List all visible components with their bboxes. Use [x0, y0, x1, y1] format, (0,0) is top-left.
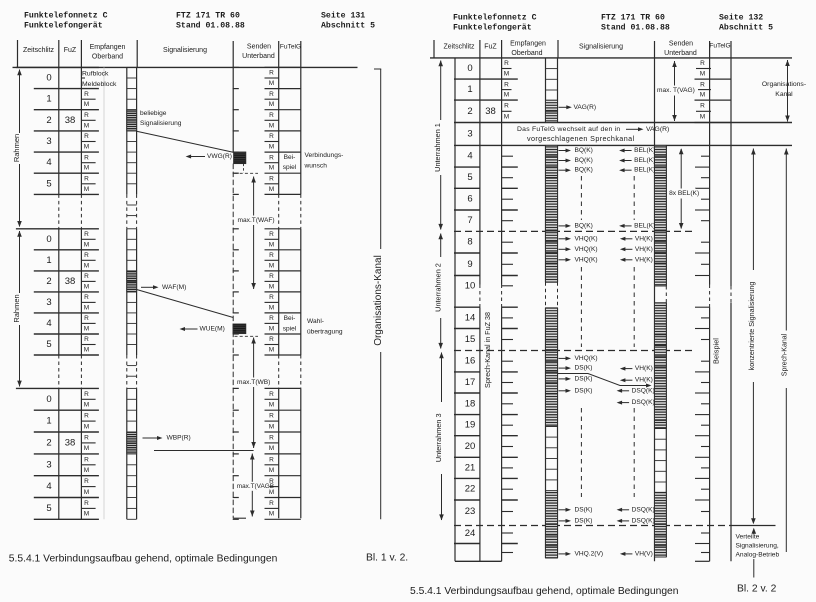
- svg-text:1: 1: [46, 416, 51, 427]
- svg-text:R: R: [84, 500, 89, 507]
- svg-text:BEL(K): BEL(K): [634, 157, 655, 164]
- svg-text:R: R: [84, 294, 89, 301]
- svg-text:23: 23: [465, 506, 476, 517]
- svg-text:max.T(WAF): max.T(WAF): [238, 217, 275, 224]
- svg-text:R: R: [269, 315, 274, 322]
- svg-text:Unterrahmen 3: Unterrahmen 3: [434, 413, 443, 462]
- svg-text:Empfangen: Empfangen: [90, 44, 126, 51]
- svg-text:Verbindungs-: Verbindungs-: [305, 152, 344, 159]
- svg-text:R: R: [84, 413, 89, 420]
- svg-text:R: R: [269, 413, 274, 420]
- svg-text:5: 5: [46, 503, 51, 514]
- svg-text:2: 2: [46, 437, 51, 448]
- svg-text:R: R: [84, 176, 89, 183]
- svg-text:M: M: [269, 445, 274, 452]
- svg-text:vorgeschlagenen Sprechkanal: vorgeschlagenen Sprechkanal: [527, 134, 635, 143]
- svg-text:M: M: [84, 241, 89, 248]
- svg-text:VHQ.2(V): VHQ.2(V): [575, 550, 604, 557]
- svg-text:M: M: [84, 402, 89, 409]
- svg-text:M: M: [84, 283, 89, 290]
- svg-text:16: 16: [465, 356, 476, 367]
- svg-text:R: R: [84, 112, 89, 119]
- svg-text:Senden: Senden: [669, 41, 693, 48]
- svg-text:3: 3: [467, 129, 472, 140]
- svg-text:wunsch: wunsch: [304, 162, 328, 169]
- svg-text:BEL(K): BEL(K): [634, 147, 655, 154]
- svg-text:konzentrierte Signalisierung: konzentrierte Signalisierung: [747, 282, 756, 371]
- svg-text:R: R: [269, 336, 274, 343]
- svg-text:M: M: [269, 122, 274, 129]
- svg-text:R: R: [700, 81, 705, 88]
- svg-text:R: R: [84, 315, 89, 322]
- svg-text:WBP(R): WBP(R): [167, 435, 191, 442]
- svg-text:Organisations-: Organisations-: [762, 81, 806, 88]
- svg-text:R: R: [504, 81, 509, 88]
- svg-text:M: M: [84, 445, 89, 452]
- svg-text:M: M: [84, 262, 89, 269]
- svg-text:Meldeblock: Meldeblock: [82, 81, 117, 88]
- svg-text:DSQ(K): DSQ(K): [632, 517, 655, 524]
- svg-text:M: M: [269, 346, 274, 353]
- svg-text:17: 17: [465, 377, 476, 388]
- svg-text:Organisations-Kanal: Organisations-Kanal: [373, 255, 384, 346]
- svg-text:WAF(M): WAF(M): [162, 284, 186, 291]
- svg-text:Beispiel: Beispiel: [712, 338, 721, 364]
- svg-text:7: 7: [467, 215, 472, 226]
- svg-text:BEL(K): BEL(K): [634, 222, 655, 229]
- svg-text:R: R: [84, 252, 89, 259]
- svg-text:4: 4: [467, 151, 472, 162]
- svg-text:R: R: [84, 478, 89, 485]
- svg-text:Zeitschlitz: Zeitschlitz: [443, 44, 475, 51]
- svg-text:5: 5: [46, 178, 51, 189]
- svg-text:M: M: [84, 122, 89, 129]
- svg-text:VHQ(K): VHQ(K): [575, 256, 598, 263]
- svg-text:R: R: [269, 112, 274, 119]
- svg-text:DS(K): DS(K): [575, 387, 593, 394]
- svg-text:R: R: [269, 456, 274, 463]
- svg-text:R: R: [269, 91, 274, 98]
- svg-text:1: 1: [46, 255, 51, 266]
- svg-text:M: M: [269, 489, 274, 496]
- svg-text:VAG(R): VAG(R): [574, 104, 597, 111]
- svg-text:14: 14: [465, 312, 476, 323]
- svg-text:Funktelefongerät: Funktelefongerät: [24, 21, 103, 31]
- svg-text:Kanal: Kanal: [775, 91, 793, 98]
- svg-text:FuZ: FuZ: [64, 47, 77, 54]
- svg-text:M: M: [84, 186, 89, 193]
- svg-text:0: 0: [46, 234, 51, 245]
- svg-text:M: M: [84, 165, 89, 172]
- svg-text:Bl. 2 v. 2: Bl. 2 v. 2: [737, 584, 777, 595]
- svg-text:DS(K): DS(K): [575, 365, 593, 372]
- svg-text:M: M: [269, 511, 274, 518]
- svg-text:0: 0: [467, 63, 472, 74]
- svg-text:Unterrahmen 1: Unterrahmen 1: [433, 123, 442, 172]
- svg-text:Funktelefongerät: Funktelefongerät: [453, 23, 532, 33]
- svg-text:R: R: [269, 70, 274, 77]
- svg-text:M: M: [269, 325, 274, 332]
- svg-text:BQ(K): BQ(K): [575, 167, 593, 174]
- svg-text:8: 8: [467, 237, 472, 248]
- svg-text:R: R: [504, 103, 509, 110]
- svg-text:R: R: [504, 60, 509, 67]
- svg-text:M: M: [269, 467, 274, 474]
- svg-text:5.5.4.1 Verbindungsaufbau gehe: 5.5.4.1 Verbindungsaufbau gehend, optima…: [410, 586, 679, 597]
- svg-text:M: M: [504, 92, 509, 99]
- svg-text:R: R: [269, 391, 274, 398]
- svg-text:Seite 132: Seite 132: [719, 13, 763, 23]
- svg-text:VHQ(K): VHQ(K): [575, 235, 598, 242]
- svg-text:max. T(VAG): max. T(VAG): [657, 87, 695, 94]
- svg-text:Unterband: Unterband: [242, 53, 275, 60]
- svg-text:2: 2: [46, 276, 51, 287]
- svg-text:Signalisierung,: Signalisierung,: [736, 543, 779, 550]
- svg-text:M: M: [269, 101, 274, 108]
- svg-text:BQ(K): BQ(K): [575, 222, 593, 229]
- svg-text:BQ(K): BQ(K): [575, 147, 593, 154]
- svg-text:VHQ(K): VHQ(K): [575, 246, 598, 253]
- svg-text:BQ(K): BQ(K): [575, 157, 593, 164]
- svg-text:Bei-: Bei-: [284, 315, 296, 322]
- svg-text:beliebige: beliebige: [140, 110, 167, 117]
- svg-text:4: 4: [46, 481, 51, 492]
- svg-text:FTZ 171 TR 60: FTZ 171 TR 60: [176, 12, 240, 21]
- svg-text:18: 18: [465, 398, 476, 409]
- svg-text:5: 5: [46, 339, 51, 350]
- svg-text:5.5.4.1 Verbindungsaufbau gehe: 5.5.4.1 Verbindungsaufbau gehend, optima…: [9, 554, 278, 565]
- svg-text:38: 38: [485, 106, 496, 117]
- svg-text:R: R: [700, 60, 705, 67]
- svg-text:Rahmen: Rahmen: [12, 294, 21, 322]
- svg-text:0: 0: [46, 394, 51, 405]
- svg-text:Sprech-Kanal: Sprech-Kanal: [782, 333, 789, 376]
- svg-text:Abschnitt 5: Abschnitt 5: [321, 21, 375, 31]
- svg-text:3: 3: [46, 297, 51, 308]
- svg-text:VH(K): VH(K): [635, 365, 653, 372]
- svg-text:R: R: [84, 273, 89, 280]
- svg-text:M: M: [269, 262, 274, 269]
- svg-text:19: 19: [465, 420, 476, 431]
- svg-text:Senden: Senden: [247, 44, 271, 51]
- svg-text:M: M: [84, 144, 89, 151]
- svg-text:spiel: spiel: [283, 326, 297, 333]
- svg-text:R: R: [84, 434, 89, 441]
- svg-text:21: 21: [465, 462, 476, 473]
- svg-text:Stand 01.08.88: Stand 01.08.88: [176, 21, 245, 31]
- svg-text:10: 10: [465, 280, 476, 291]
- svg-text:M: M: [269, 186, 274, 193]
- svg-text:R: R: [84, 133, 89, 140]
- svg-text:R: R: [84, 154, 89, 161]
- svg-text:M: M: [269, 402, 274, 409]
- svg-text:R: R: [269, 133, 274, 140]
- svg-text:M: M: [269, 283, 274, 290]
- svg-text:BEL(K): BEL(K): [634, 167, 655, 174]
- svg-text:Bei-: Bei-: [284, 154, 296, 161]
- svg-text:24: 24: [465, 528, 476, 539]
- svg-text:VH(K): VH(K): [635, 377, 653, 384]
- svg-text:M: M: [84, 101, 89, 108]
- svg-text:übertragung: übertragung: [307, 329, 343, 336]
- svg-text:M: M: [84, 346, 89, 353]
- svg-text:M: M: [269, 304, 274, 311]
- svg-text:VH(K): VH(K): [635, 235, 653, 242]
- svg-text:FTZ 171 TR 60: FTZ 171 TR 60: [601, 14, 665, 23]
- svg-text:M: M: [269, 423, 274, 430]
- svg-text:R: R: [269, 231, 274, 238]
- svg-text:M: M: [269, 80, 274, 87]
- svg-text:20: 20: [465, 441, 476, 452]
- svg-text:R: R: [700, 103, 705, 110]
- svg-text:Signalisierung: Signalisierung: [163, 47, 207, 54]
- svg-text:3: 3: [46, 136, 51, 147]
- svg-text:R: R: [269, 294, 274, 301]
- svg-text:DS(K): DS(K): [575, 517, 593, 524]
- svg-text:2: 2: [46, 115, 51, 126]
- svg-text:VH(K): VH(K): [635, 246, 653, 253]
- svg-text:Zeitschlitz: Zeitschlitz: [23, 47, 55, 54]
- svg-text:M: M: [84, 467, 89, 474]
- svg-text:M: M: [84, 489, 89, 496]
- svg-text:VAG(R): VAG(R): [646, 126, 669, 133]
- svg-text:M: M: [84, 511, 89, 518]
- svg-text:Unterrahmen 2: Unterrahmen 2: [433, 263, 442, 312]
- svg-text:Analog-Betrieb: Analog-Betrieb: [736, 551, 780, 558]
- svg-text:R: R: [269, 434, 274, 441]
- svg-text:Wahl-: Wahl-: [307, 318, 324, 325]
- svg-text:M: M: [504, 71, 509, 78]
- svg-text:M: M: [84, 304, 89, 311]
- svg-text:M: M: [269, 241, 274, 248]
- svg-text:FuTelG: FuTelG: [709, 43, 730, 50]
- svg-text:1: 1: [467, 84, 472, 95]
- svg-text:22: 22: [465, 484, 476, 495]
- svg-text:Empfangen: Empfangen: [510, 41, 546, 48]
- svg-text:8x BEL(K): 8x BEL(K): [669, 190, 699, 197]
- svg-text:Rahmen: Rahmen: [12, 134, 21, 162]
- svg-text:max.T(WB): max.T(WB): [237, 379, 270, 386]
- svg-text:R: R: [84, 336, 89, 343]
- svg-text:Das FuTelG wechselt auf den in: Das FuTelG wechselt auf den in: [517, 126, 620, 133]
- svg-text:0: 0: [46, 73, 51, 84]
- svg-text:38: 38: [65, 437, 76, 448]
- svg-text:R: R: [269, 273, 274, 280]
- svg-text:Signalisierung: Signalisierung: [140, 120, 182, 127]
- svg-text:38: 38: [65, 276, 76, 287]
- svg-text:Sprech-Kanal in FuZ 38: Sprech-Kanal in FuZ 38: [483, 312, 492, 388]
- svg-text:15: 15: [465, 334, 476, 345]
- svg-text:Verteilte: Verteilte: [736, 534, 760, 541]
- svg-text:Bl. 1 v. 2.: Bl. 1 v. 2.: [366, 553, 408, 564]
- svg-text:M: M: [700, 71, 705, 78]
- svg-text:Unterband: Unterband: [664, 50, 697, 57]
- svg-text:6: 6: [467, 194, 472, 205]
- svg-text:Stand 01.08.88: Stand 01.08.88: [601, 23, 670, 33]
- svg-text:VH(V): VH(V): [635, 550, 653, 557]
- svg-text:Abschnitt 5: Abschnitt 5: [719, 23, 773, 33]
- svg-text:3: 3: [46, 459, 51, 470]
- svg-text:VHQ(K): VHQ(K): [575, 355, 598, 362]
- svg-text:DSQ(K): DSQ(K): [632, 506, 655, 513]
- svg-text:M: M: [269, 144, 274, 151]
- svg-text:M: M: [84, 325, 89, 332]
- svg-text:R: R: [269, 154, 274, 161]
- svg-text:DSQ(K): DSQ(K): [632, 387, 655, 394]
- svg-text:M: M: [84, 423, 89, 430]
- svg-text:R: R: [84, 456, 89, 463]
- svg-text:M: M: [269, 165, 274, 172]
- svg-text:FuZ: FuZ: [484, 44, 497, 51]
- svg-text:Seite 131: Seite 131: [321, 11, 365, 21]
- svg-text:R: R: [84, 391, 89, 398]
- svg-text:Oberband: Oberband: [511, 50, 542, 57]
- svg-text:Signalisierung: Signalisierung: [579, 44, 623, 51]
- svg-text:4: 4: [46, 318, 51, 329]
- svg-text:4: 4: [46, 157, 51, 168]
- svg-text:M: M: [700, 114, 705, 121]
- svg-text:M: M: [700, 92, 705, 99]
- svg-text:Rufblock: Rufblock: [82, 71, 109, 78]
- svg-text:9: 9: [467, 259, 472, 270]
- svg-text:FuTelG: FuTelG: [280, 44, 301, 51]
- svg-text:WUE(M): WUE(M): [200, 326, 225, 333]
- svg-text:1: 1: [46, 94, 51, 105]
- svg-text:38: 38: [65, 115, 76, 126]
- svg-text:DS(K): DS(K): [575, 506, 593, 513]
- svg-text:spiel: spiel: [283, 164, 297, 171]
- svg-text:2: 2: [467, 106, 472, 117]
- svg-text:VH(K): VH(K): [635, 256, 653, 263]
- svg-text:Funktelefonnetz C: Funktelefonnetz C: [24, 11, 108, 21]
- svg-text:R: R: [269, 252, 274, 259]
- svg-text:Oberband: Oberband: [92, 54, 123, 61]
- svg-text:DSQ(K): DSQ(K): [632, 399, 655, 406]
- svg-text:R: R: [84, 231, 89, 238]
- svg-text:VWG(R): VWG(R): [207, 153, 232, 160]
- svg-text:Funktelefonnetz C: Funktelefonnetz C: [453, 13, 537, 23]
- svg-text:max.T(VAGB: max.T(VAGB: [237, 483, 274, 490]
- svg-text:R: R: [269, 500, 274, 507]
- svg-text:DS(K): DS(K): [575, 375, 593, 382]
- svg-text:5: 5: [467, 172, 472, 183]
- svg-text:R: R: [269, 176, 274, 183]
- svg-text:M: M: [504, 114, 509, 121]
- svg-text:R: R: [84, 91, 89, 98]
